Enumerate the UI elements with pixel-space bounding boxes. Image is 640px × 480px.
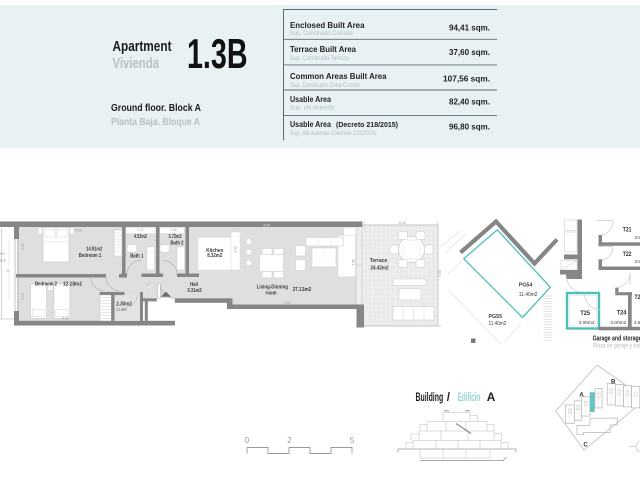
- svg-text:T22: T22: [623, 252, 632, 258]
- svg-text:Enclosed Built Area: Enclosed Built Area: [290, 20, 365, 30]
- svg-text:107,56 sqm.: 107,56 sqm.: [443, 74, 490, 84]
- svg-text:96,80 sqm.: 96,80 sqm.: [449, 122, 490, 132]
- svg-text:room: room: [266, 290, 277, 296]
- svg-text:T23: T23: [635, 295, 640, 301]
- svg-text:14.91m2: 14.91m2: [86, 246, 102, 252]
- svg-text:m2: m2: [0, 258, 6, 263]
- svg-text:ce: ce: [0, 251, 5, 256]
- svg-text:B: B: [611, 379, 616, 385]
- svg-text:5: 5: [350, 436, 355, 445]
- svg-text:T25: T25: [580, 310, 590, 317]
- svg-text:Sup. Construido Cerrado: Sup. Construido Cerrado: [290, 30, 353, 37]
- svg-text:Usable Area: Usable Area: [290, 94, 331, 104]
- svg-text:4.50: 4.50: [284, 301, 291, 305]
- svg-text:4.65m2: 4.65m2: [634, 320, 640, 326]
- svg-text:27.13m2: 27.13m2: [293, 287, 312, 293]
- svg-text:Sup. útil vivienda: Sup. útil vivienda: [290, 105, 334, 112]
- svg-text:Garage and storage: Garage and storage: [593, 333, 640, 342]
- svg-text:6.42: 6.42: [399, 221, 406, 225]
- svg-text:Sup. Construido Terraza: Sup. Construido Terraza: [290, 55, 349, 62]
- svg-text:2: 2: [287, 436, 292, 445]
- svg-text:Sup. Construido Zona Común: Sup. Construido Zona Común: [290, 82, 360, 89]
- svg-text:Planta Baja. Bloque A: Planta Baja. Bloque A: [111, 117, 200, 128]
- svg-text:94,41 sqm.: 94,41 sqm.: [449, 23, 490, 33]
- svg-text:C: C: [583, 443, 588, 449]
- svg-text:37,60 sqm.: 37,60 sqm.: [449, 47, 490, 57]
- svg-text:Bedroom 1: Bedroom 1: [79, 253, 102, 259]
- svg-text:PG55: PG55: [489, 314, 503, 320]
- svg-text:3.95m2: 3.95m2: [635, 235, 640, 241]
- svg-text:Bath 2: Bath 2: [170, 241, 183, 247]
- svg-text:9.31m2: 9.31m2: [187, 288, 201, 294]
- svg-text:3.72m2: 3.72m2: [169, 234, 182, 240]
- svg-text:1.98: 1.98: [147, 283, 151, 289]
- svg-text:8.32m2: 8.32m2: [207, 253, 222, 259]
- svg-text:Plaza de garaje y trastero: Plaza de garaje y trastero: [593, 343, 640, 349]
- svg-text:5.86: 5.86: [75, 229, 82, 233]
- svg-text:Terrace Built Area: Terrace Built Area: [290, 44, 356, 54]
- svg-text:(Decreto 218/2015): (Decreto 218/2015): [336, 122, 398, 129]
- svg-text:1.3B: 1.3B: [187, 30, 248, 77]
- svg-text:2.90: 2.90: [21, 243, 25, 250]
- svg-text:Bedroom 2: Bedroom 2: [35, 281, 57, 287]
- svg-text:24.42m2: 24.42m2: [370, 265, 388, 271]
- svg-text:3.92: 3.92: [234, 246, 238, 253]
- svg-text:3.00m2: 3.00m2: [579, 320, 595, 326]
- svg-text:Common Areas Built Area: Common Areas Built Area: [290, 71, 387, 81]
- svg-text:Apartment: Apartment: [113, 38, 172, 55]
- svg-text:11.40m2: 11.40m2: [489, 321, 507, 327]
- svg-text:Bath 1: Bath 1: [130, 254, 143, 260]
- svg-text:PG54: PG54: [519, 283, 533, 289]
- svg-text:4.53m2: 4.53m2: [134, 234, 147, 240]
- svg-text:T24: T24: [617, 309, 627, 316]
- svg-text:Vivienda: Vivienda: [113, 55, 160, 72]
- svg-text:Edificio: Edificio: [458, 390, 481, 404]
- svg-text:Terrace: Terrace: [370, 258, 388, 264]
- svg-text:Ground floor. Block A: Ground floor. Block A: [111, 103, 201, 114]
- svg-text:5.44: 5.44: [264, 223, 271, 227]
- svg-text:0: 0: [245, 436, 250, 445]
- svg-text:Usable Area: Usable Area: [290, 119, 331, 129]
- svg-text:1.71: 1.71: [137, 228, 144, 232]
- svg-text:1.40: 1.40: [170, 228, 177, 232]
- svg-text:A: A: [487, 390, 496, 404]
- svg-text:CLIMA: CLIMA: [116, 307, 127, 312]
- svg-text:3.05: 3.05: [21, 293, 25, 300]
- svg-text:5.08: 5.08: [438, 270, 442, 277]
- svg-text:11.40m2: 11.40m2: [519, 292, 538, 298]
- svg-text:12.18m2: 12.18m2: [63, 281, 82, 287]
- svg-text:3.95m2: 3.95m2: [635, 259, 640, 265]
- svg-text:T21: T21: [623, 228, 632, 234]
- svg-text:4.48: 4.48: [352, 259, 356, 266]
- svg-text:5.06: 5.06: [62, 317, 69, 321]
- svg-text:82,40 sqm.: 82,40 sqm.: [449, 97, 490, 107]
- svg-text:3.00m2: 3.00m2: [610, 320, 626, 326]
- svg-text:A: A: [579, 393, 584, 399]
- svg-text:Building: Building: [416, 390, 444, 404]
- svg-text:Sup. útil vivienda (Decreto 21: Sup. útil vivienda (Decreto 218/2015): [290, 130, 377, 137]
